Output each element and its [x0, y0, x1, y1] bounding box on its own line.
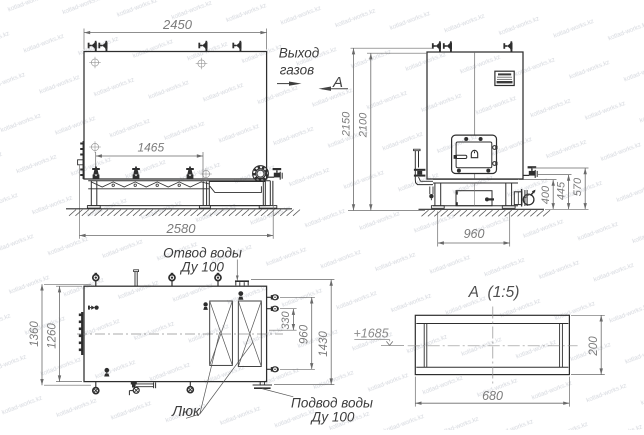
svg-text:Отвод воды: Отвод воды: [163, 246, 242, 261]
svg-text:400: 400: [540, 185, 552, 204]
svg-text:А (1:5): А (1:5): [468, 284, 520, 301]
svg-text:2150: 2150: [340, 111, 352, 137]
svg-text:200: 200: [588, 336, 600, 357]
svg-text:2450: 2450: [162, 17, 193, 32]
svg-text:1360: 1360: [29, 321, 41, 347]
svg-text:+1685: +1685: [353, 327, 388, 341]
svg-text:2580: 2580: [166, 221, 197, 236]
svg-text:330: 330: [280, 310, 292, 329]
svg-text:Ду 100: Ду 100: [310, 410, 355, 425]
svg-text:Ду 100: Ду 100: [179, 260, 224, 275]
svg-text:газов: газов: [280, 63, 314, 78]
svg-text:680: 680: [482, 389, 503, 403]
svg-text:570: 570: [572, 177, 584, 196]
svg-text:А: А: [332, 74, 343, 91]
svg-text:1430: 1430: [318, 331, 330, 357]
svg-text:960: 960: [464, 227, 485, 241]
svg-text:445: 445: [555, 181, 567, 200]
svg-text:2100: 2100: [358, 112, 370, 138]
svg-text:1260: 1260: [46, 323, 58, 349]
svg-text:Люк: Люк: [171, 404, 201, 420]
svg-text:Подвод воды: Подвод воды: [291, 396, 373, 411]
svg-text:960: 960: [299, 324, 311, 344]
svg-text:Выход: Выход: [279, 46, 320, 61]
svg-text:1465: 1465: [137, 141, 164, 155]
